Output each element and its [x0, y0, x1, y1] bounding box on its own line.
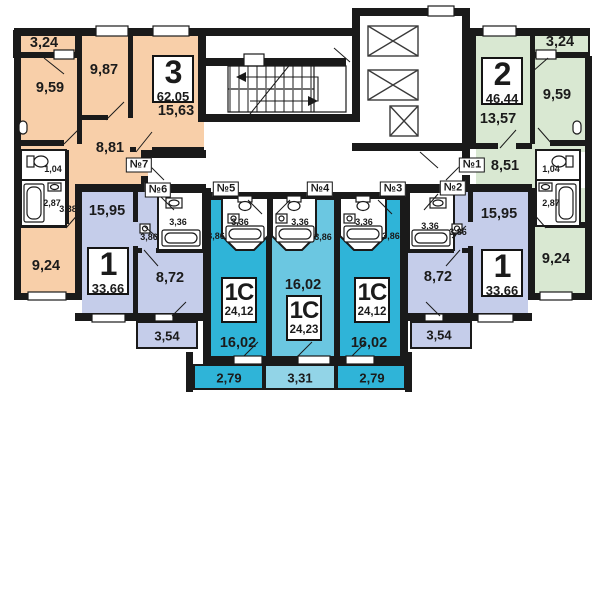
- apt6-type: 1: [100, 248, 117, 280]
- apt3-hall-area: 3,86: [382, 231, 400, 241]
- apt7-total-area: 62,05: [157, 90, 190, 103]
- apt3-balcony-area: 2,79: [359, 371, 384, 386]
- apt2-type: 1: [494, 250, 511, 282]
- apt3-total-area: 24,12: [358, 307, 387, 319]
- apt6-balcony-area: 3,54: [154, 329, 179, 344]
- apt2-type-badge: 1 33,66: [481, 249, 523, 297]
- apt3-type: 1С: [358, 281, 387, 305]
- apt5-type-badge: 1С 24,12: [221, 277, 257, 323]
- apt7-room1-area: 9,59: [36, 80, 64, 96]
- apt7-type: 3: [165, 56, 182, 88]
- apt6-kitchen-area: 8,72: [156, 270, 184, 286]
- door-plate-1: №1: [459, 158, 485, 173]
- apt7-bath-area: 2,87: [43, 198, 61, 208]
- apt2-kitchen-area: 8,72: [424, 269, 452, 285]
- apt7-balcony-area: 3,24: [30, 35, 58, 51]
- apt4-type-badge: 1С 24,23: [286, 295, 322, 341]
- apt1-wc-area: 1,04: [542, 164, 560, 174]
- apt3-bath-area: 3,36: [355, 217, 373, 227]
- apt3-type-badge: 1С 24,12: [354, 277, 390, 323]
- apt1-type-badge: 2 46,44: [481, 57, 523, 105]
- apt7-wc-area: 1,04: [44, 164, 62, 174]
- apt4-living-area: 16,02: [285, 277, 321, 293]
- apt2-bath-area: 3,36: [421, 221, 439, 231]
- apt2-living-area: 15,95: [481, 206, 517, 222]
- apt5-balcony-area: 2,79: [216, 371, 241, 386]
- apt4-balcony-area: 3,31: [287, 371, 312, 386]
- apt1-bath-area: 2,87: [542, 198, 560, 208]
- apt6-type-badge: 1 33,66: [87, 247, 129, 295]
- apt6-hall-area: 3,86: [140, 232, 158, 242]
- apt1-balcony-area: 3,24: [546, 34, 574, 50]
- apt5-total-area: 24,12: [225, 307, 254, 319]
- elevators: [368, 26, 418, 136]
- apt7-corridor-area: 3,38: [59, 204, 77, 214]
- apt7-type-badge: 3 62,05: [152, 55, 194, 103]
- apt1-hall-area: 8,51: [491, 158, 519, 174]
- apt5-hall-area: 3,86: [207, 231, 225, 241]
- apt2-balcony-area: 3,54: [426, 328, 451, 343]
- apt5-living-area: 16,02: [220, 335, 256, 351]
- apt6-total-area: 33,66: [92, 282, 125, 295]
- apt2-total-area: 33,66: [486, 284, 519, 297]
- apt4-type: 1С: [290, 299, 319, 323]
- apt6-bath-area: 3,36: [169, 217, 187, 227]
- apt4-bath-area: 3,36: [291, 217, 309, 227]
- apt7-kitchen-area: 9,24: [32, 258, 60, 274]
- apt7-hall-area: 8,81: [96, 140, 124, 156]
- door-plate-4: №4: [307, 182, 333, 197]
- apt1-living-area: 13,57: [480, 111, 516, 127]
- apt7-room2-area: 9,87: [90, 62, 118, 78]
- stairs: [228, 62, 346, 114]
- floor-plan: 3 62,05 1 33,66 1С 24,12 1С 24,23 1С 24,…: [0, 0, 600, 600]
- apt2-hall-area: 3,86: [449, 227, 467, 237]
- door-plate-6: №6: [145, 183, 171, 198]
- apt5-bath-area: 3,36: [231, 217, 249, 227]
- door-plate-7: №7: [126, 158, 152, 173]
- apt5-type: 1С: [225, 281, 254, 305]
- apt3-living-area: 16,02: [351, 335, 387, 351]
- apt4-hall-area: 3,86: [314, 232, 332, 242]
- apt7-living-area: 15,63: [158, 103, 194, 119]
- apt1-total-area: 46,44: [486, 92, 519, 105]
- door-plate-5: №5: [213, 182, 239, 197]
- apt1-room1-area: 9,59: [543, 87, 571, 103]
- door-plate-3: №3: [380, 182, 406, 197]
- apt4-total-area: 24,23: [290, 325, 319, 337]
- apt1-kitchen-area: 9,24: [542, 251, 570, 267]
- apt6-living-area: 15,95: [89, 203, 125, 219]
- apt1-type: 2: [494, 58, 511, 90]
- door-plate-2: №2: [440, 181, 466, 196]
